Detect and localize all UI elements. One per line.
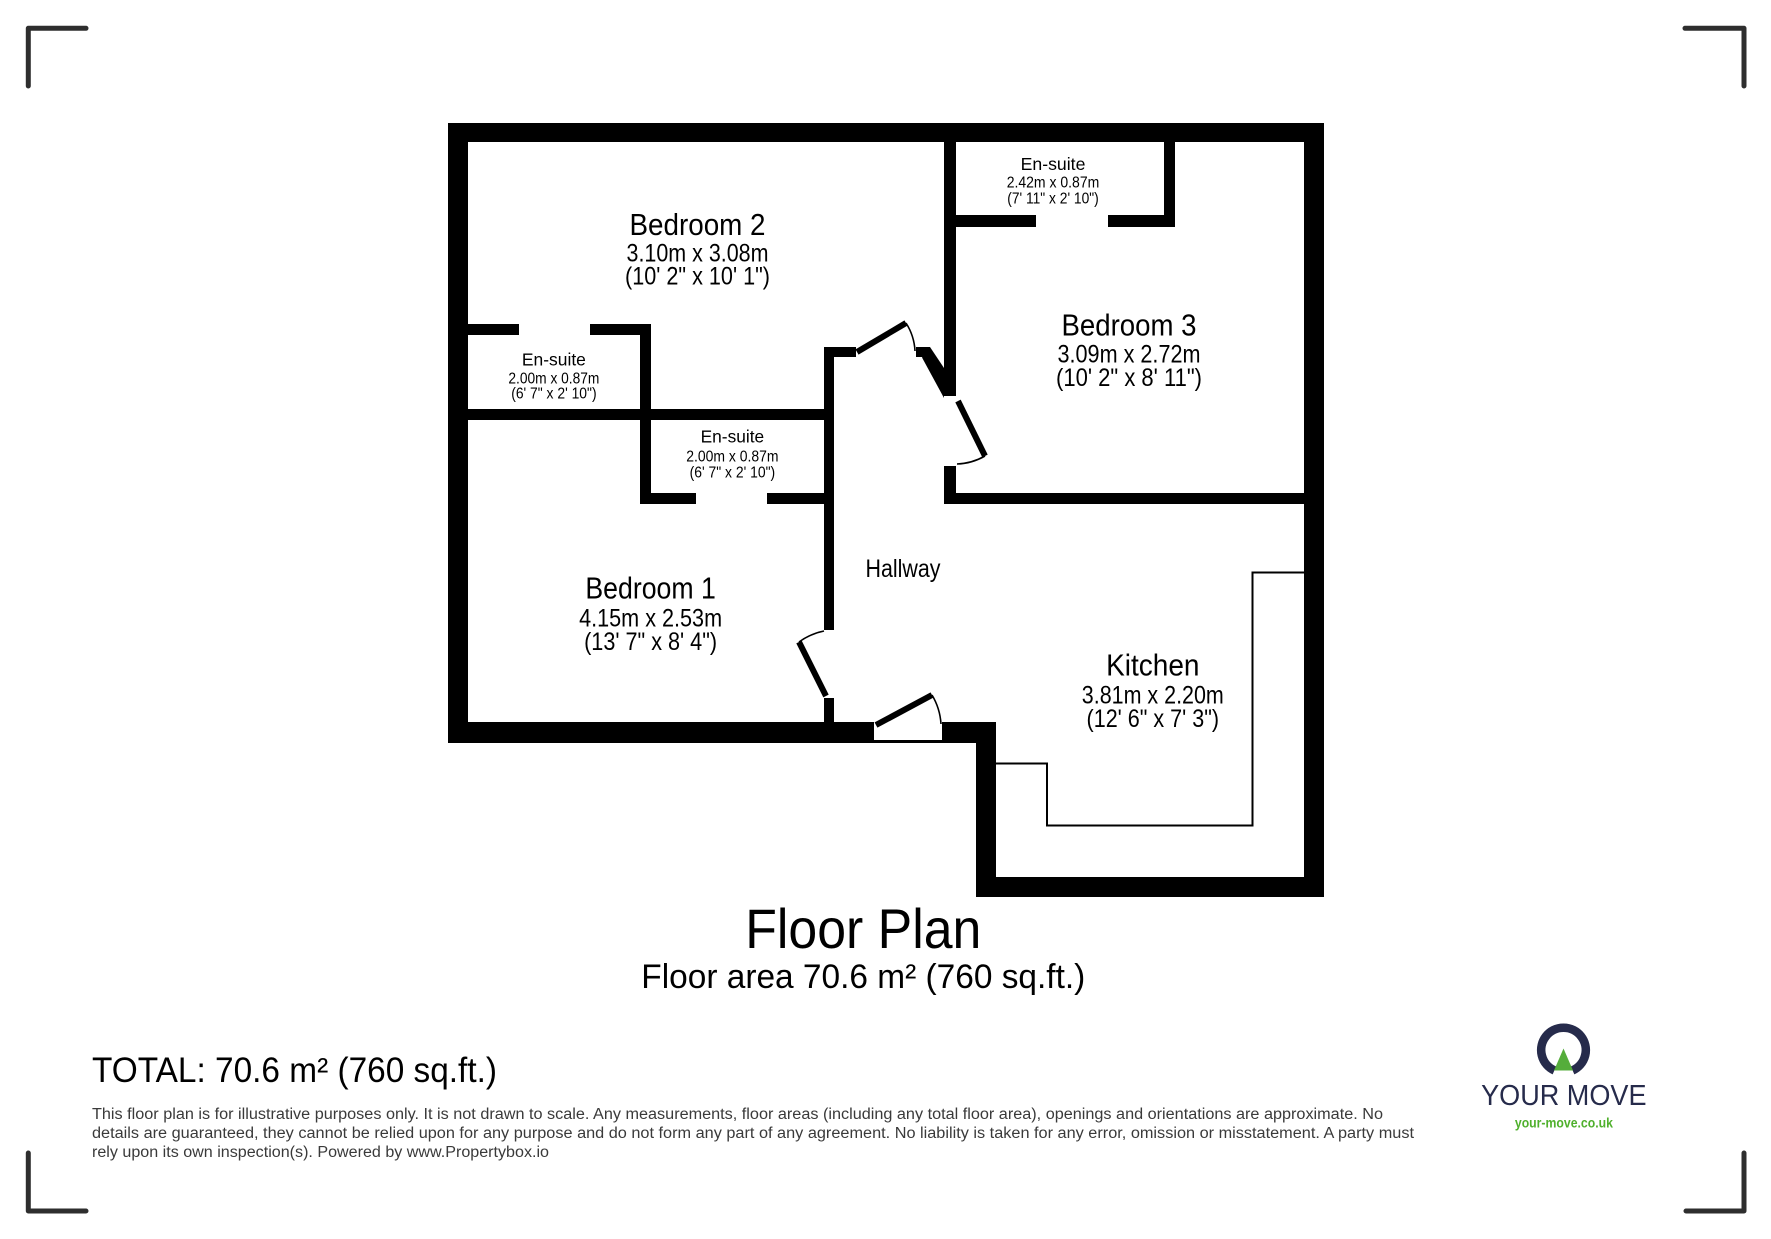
svg-text:Bedroom 3: Bedroom 3 [1062,307,1197,342]
svg-text:2.00m x 0.87m: 2.00m x 0.87m [686,449,778,466]
svg-text:En-suite: En-suite [1021,154,1086,174]
svg-text:(12' 6" x 7' 3"): (12' 6" x 7' 3") [1087,705,1220,733]
svg-text:details are guaranteed, they c: details are guaranteed, they cannot be r… [92,1125,1415,1142]
svg-text:En-suite: En-suite [522,350,586,370]
svg-text:Hallway: Hallway [866,555,941,583]
svg-text:En-suite: En-suite [701,426,765,446]
svg-text:(10' 2" x 8' 11"): (10' 2" x 8' 11") [1056,364,1202,392]
svg-text:Bedroom 1: Bedroom 1 [585,571,716,606]
svg-text:your-move.co.uk: your-move.co.uk [1515,1115,1613,1131]
svg-text:rely upon its own inspection(s: rely upon its own inspection(s). Powered… [92,1144,549,1161]
svg-text:Floor area 70.6 m² (760 sq.ft.: Floor area 70.6 m² (760 sq.ft.) [641,958,1085,996]
svg-text:YOUR MOVE: YOUR MOVE [1481,1080,1646,1112]
svg-text:(10' 2" x 10' 1"): (10' 2" x 10' 1") [625,263,770,291]
svg-text:This floor plan is for illustr: This floor plan is for illustrative purp… [92,1106,1383,1123]
svg-text:TOTAL: 70.6 m² (760 sq.ft.): TOTAL: 70.6 m² (760 sq.ft.) [92,1051,497,1090]
svg-text:(6' 7" x 2' 10"): (6' 7" x 2' 10") [511,386,596,403]
svg-text:(6' 7" x 2' 10"): (6' 7" x 2' 10") [690,465,776,482]
svg-text:(13' 7" x 8' 4"): (13' 7" x 8' 4") [584,628,717,656]
svg-text:2.42m x 0.87m: 2.42m x 0.87m [1007,175,1100,192]
svg-text:Kitchen: Kitchen [1106,647,1199,682]
svg-text:Floor Plan: Floor Plan [745,897,981,960]
svg-text:Bedroom 2: Bedroom 2 [630,207,766,242]
svg-text:(7' 11" x 2' 10"): (7' 11" x 2' 10") [1007,191,1099,208]
